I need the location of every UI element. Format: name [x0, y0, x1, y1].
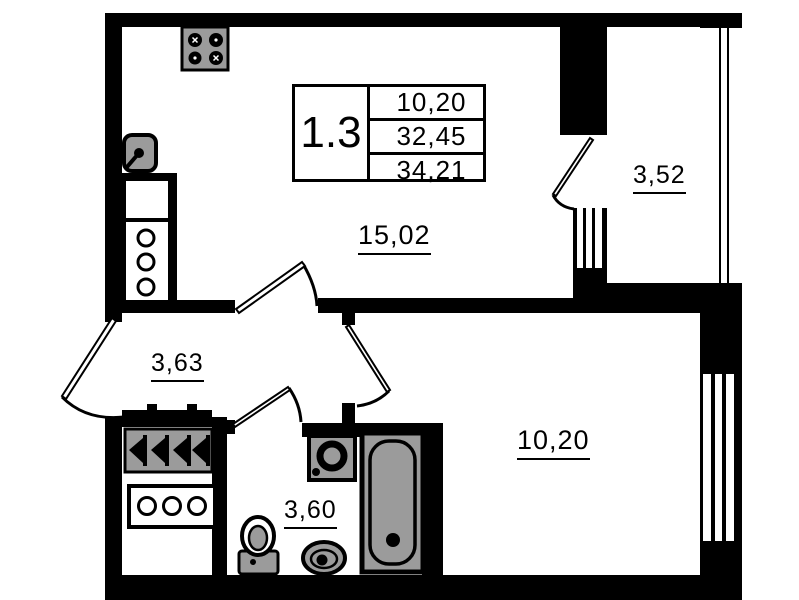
- balcony-area-value: 3,52: [633, 161, 686, 194]
- bedroom-area-value: 10,20: [517, 425, 590, 460]
- wall-right-upper: [700, 313, 742, 374]
- unit-total-area: 34,21: [370, 155, 483, 186]
- toilet-icon: [239, 517, 278, 574]
- wall-bottom: [105, 575, 742, 600]
- room-label-living-kitchen: 15,02: [358, 222, 431, 249]
- bedroom-door-icon: [346, 325, 390, 406]
- appliance-counter-icon: [129, 486, 215, 527]
- balcony-door-icon: [553, 138, 593, 209]
- room-label-hallway: 3,63: [151, 351, 204, 376]
- room-label-bedroom: 10,20: [517, 427, 590, 454]
- unit-floor-area: 32,45: [370, 121, 483, 155]
- wall-closet-tick-1: [147, 404, 157, 411]
- hallway-area-value: 3,63: [151, 349, 204, 382]
- wall-top: [105, 13, 742, 27]
- balcony-glazing-line-1: [719, 27, 721, 283]
- wall-bedroom-door-stub-bottom: [342, 403, 355, 423]
- stove-icon: [182, 27, 228, 70]
- bathroom-sink-icon: [303, 542, 345, 574]
- wall-bedroom-door-stub-top: [342, 313, 355, 325]
- bathtub-icon: [362, 433, 423, 572]
- living-kitchen-area-value: 15,02: [358, 220, 431, 255]
- wall-balcony-divider-upper: [560, 27, 607, 135]
- balcony-glazing-line-2: [727, 27, 729, 283]
- wall-right-lower: [700, 541, 742, 581]
- wall-left-upper: [105, 13, 122, 322]
- wall-balcony-bottom: [573, 283, 742, 313]
- wall-left-lower: [105, 417, 122, 600]
- entrance-door-icon: [62, 318, 124, 418]
- floor-plan: 15,02 3,52 3,63 3,60 10,20 1.3 10,20 32,…: [0, 0, 799, 600]
- kitchen-sink-icon: [124, 135, 156, 171]
- unit-type-label: 1.3: [295, 87, 370, 179]
- kitchen-counter-icon: [122, 173, 177, 303]
- wardrobe-hangers-icon: [125, 429, 212, 472]
- bathroom-door-icon: [233, 387, 301, 427]
- room-label-balcony: 3,52: [633, 163, 686, 188]
- wall-top-right-block: [700, 13, 742, 28]
- bedroom-window-icon: [700, 373, 742, 542]
- wall-closet-tick-2: [187, 404, 197, 411]
- kitchen-fixtures: [122, 27, 228, 303]
- bathroom-area-value: 3,60: [284, 496, 337, 529]
- unit-info-card: 1.3 10,20 32,45 34,21: [292, 84, 486, 182]
- wall-hall-livingroom-right: [318, 298, 573, 313]
- closet-fixtures: [125, 429, 215, 527]
- balcony-window-icon: [573, 208, 607, 268]
- unit-values: 10,20 32,45 34,21: [370, 87, 483, 179]
- washing-machine-icon: [309, 436, 355, 480]
- livingroom-door-icon: [236, 262, 317, 313]
- unit-living-area: 10,20: [370, 87, 483, 121]
- wall-closet-top: [122, 410, 212, 427]
- room-label-bathroom: 3,60: [284, 498, 337, 523]
